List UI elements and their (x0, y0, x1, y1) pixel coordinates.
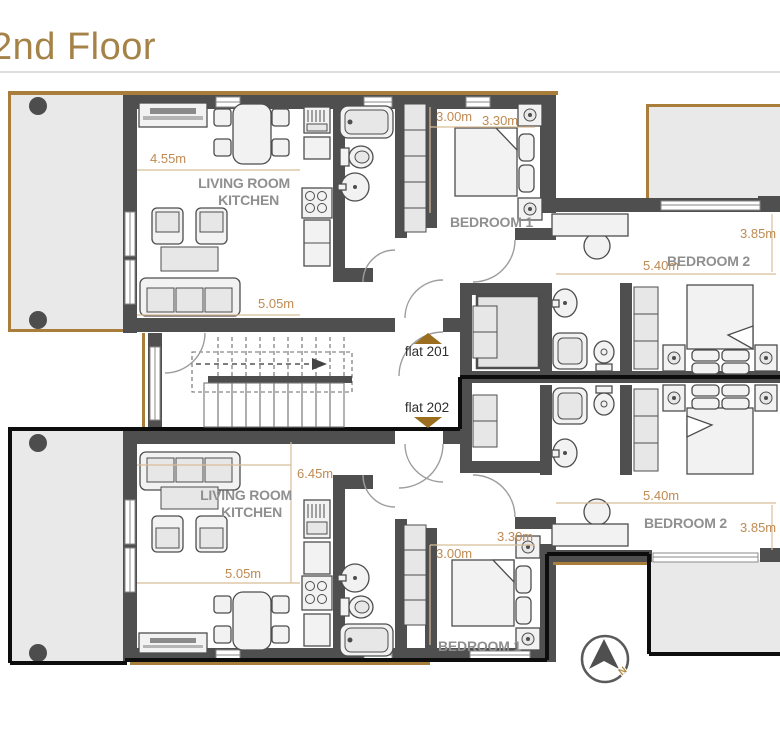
bathtub (340, 624, 393, 656)
stair-direction-arrow (312, 358, 327, 370)
room-label-living201-line1: LIVING ROOM (198, 175, 290, 191)
room-label-living202-line2: KITCHEN (221, 504, 282, 520)
dim-living202-width: 5.05m (225, 566, 261, 581)
dim-bedroom1-201-width: 3.00m (436, 109, 472, 124)
column (29, 644, 47, 662)
toilet (340, 146, 373, 168)
room-label-bedroom2-202: BEDROOM 2 (644, 515, 727, 531)
bathtub (340, 106, 393, 138)
dining-table (214, 104, 289, 164)
armchair (152, 516, 183, 552)
tv-unit (139, 103, 207, 127)
balcony-bottom-left (11, 431, 125, 663)
sofa (140, 452, 240, 490)
fridge (304, 500, 330, 538)
wardrobe-bedroom2-202 (634, 389, 658, 471)
bed-bedroom2 (663, 385, 777, 474)
sink (552, 439, 577, 467)
column (29, 311, 47, 329)
dim-bedroom2-202-length: 5.40m (643, 488, 679, 503)
bed-bedroom2 (663, 285, 777, 374)
toilet (340, 596, 373, 618)
flat-201-label: flat 201 (405, 344, 449, 359)
room-label-bedroom2-201: BEDROOM 2 (667, 253, 750, 269)
fridge (304, 107, 330, 133)
shower-tray (553, 388, 587, 424)
stair-handrail (208, 376, 352, 383)
column (29, 434, 47, 452)
flat-202-label: flat 202 (405, 400, 449, 415)
balcony-bottom-right (651, 560, 780, 654)
page-title: 2nd Floor (0, 26, 156, 68)
sofa (140, 278, 240, 316)
wardrobe-corridor-202 (473, 395, 497, 447)
room-label-living201-line2: KITCHEN (218, 192, 279, 208)
dim-living201-length: 5.05m (258, 296, 294, 311)
wardrobe-hall-202 (404, 525, 426, 625)
tv-unit (139, 633, 207, 653)
dim-living202-depth: 6.45m (297, 466, 333, 481)
sink (552, 289, 577, 317)
dim-living201-width: 4.55m (150, 151, 186, 166)
dim-bedroom1-202-width: 3.00m (436, 546, 472, 561)
room-label-bedroom1-202: BEDROOM 1 (438, 638, 521, 654)
room-label-bedroom1-201: BEDROOM 1 (450, 214, 533, 230)
armchair (152, 208, 183, 244)
dim-bedroom1-202-length: 3.30m (497, 529, 533, 544)
staircase (192, 337, 352, 427)
dim-bedroom2-202-width: 3.85m (740, 520, 776, 535)
title-divider (0, 71, 780, 73)
balcony-top-right (646, 104, 780, 200)
stove (302, 188, 332, 218)
room-label-living202-line1: LIVING ROOM (200, 487, 292, 503)
flat-201-up-arrow (414, 333, 442, 344)
floor-plan-page: 2nd Floor (0, 0, 780, 729)
armchair (196, 208, 227, 244)
desk-bedroom2 (552, 499, 628, 546)
desk-bedroom2 (552, 214, 628, 259)
flat-202-down-arrow (414, 417, 442, 428)
coffee-table (161, 247, 218, 271)
wardrobe-hall-201 (404, 104, 426, 232)
armchair (196, 516, 227, 552)
column (29, 97, 47, 115)
dim-bedroom1-201-length: 3.30m (482, 113, 518, 128)
floor-plan-drawing: 2nd Floor (0, 0, 780, 729)
dining-table (214, 592, 289, 650)
dim-bedroom2-201-length: 5.40m (643, 258, 679, 273)
wardrobe-corridor-201 (473, 306, 497, 358)
dim-bedroom2-201-width: 3.85m (740, 226, 776, 241)
stove (302, 576, 332, 610)
toilet (594, 341, 614, 371)
shower-tray (553, 333, 587, 369)
toilet (594, 386, 614, 415)
compass: N (582, 636, 629, 682)
wardrobe-bedroom2-201 (634, 287, 658, 369)
